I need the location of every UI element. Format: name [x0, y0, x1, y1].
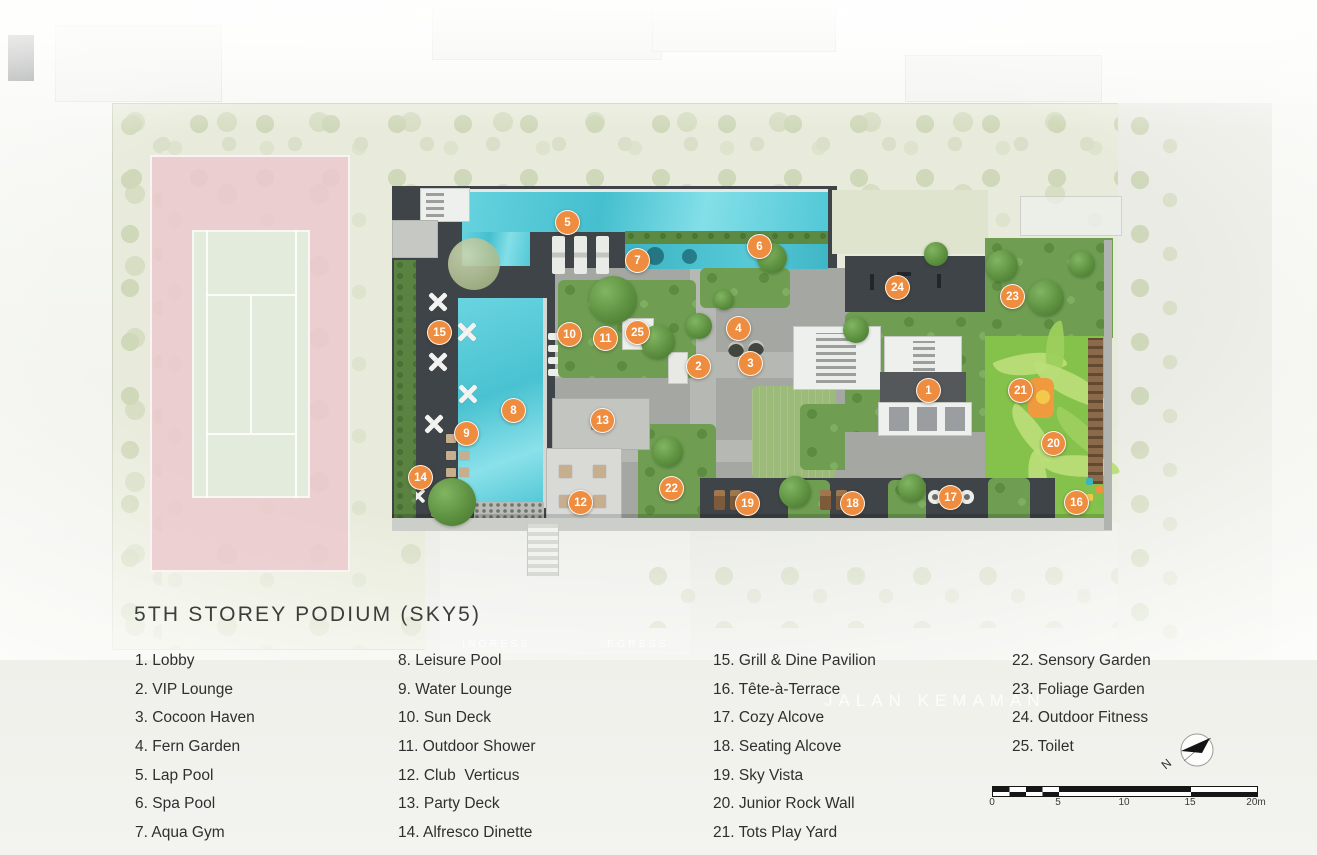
legend-item: 2. VIP Lounge	[135, 681, 435, 710]
markers-layer: 1234567891011121314151617181920212223242…	[0, 0, 1317, 660]
plan-marker-15: 15	[427, 320, 452, 345]
legend-item: 23. Foliage Garden	[1012, 681, 1312, 710]
scalebar-label: 10	[1118, 797, 1129, 808]
plan-marker-20: 20	[1041, 431, 1066, 456]
plan-marker-21: 21	[1008, 378, 1033, 403]
scalebar-label: 5	[1055, 797, 1061, 808]
plan-marker-3: 3	[738, 351, 763, 376]
legend-item: 12. Club Verticus	[398, 767, 698, 796]
plan-marker-10: 10	[557, 322, 582, 347]
legend-item: 5. Lap Pool	[135, 767, 435, 796]
legend-item: 3. Cocoon Haven	[135, 709, 435, 738]
plan-marker-22: 22	[659, 476, 684, 501]
legend-item: 4. Fern Garden	[135, 738, 435, 767]
legend-item: 19. Sky Vista	[713, 767, 1013, 796]
legend-item: 20. Junior Rock Wall	[713, 795, 1013, 824]
plan-marker-18: 18	[840, 491, 865, 516]
legend-column: 1. Lobby2. VIP Lounge3. Cocoon Haven4. F…	[135, 652, 435, 853]
scalebar-label: 20m	[1246, 797, 1265, 808]
scalebar-labels: 05101520m	[992, 797, 1256, 809]
north-arrow-icon	[1178, 731, 1216, 774]
legend-item: 22. Sensory Garden	[1012, 652, 1312, 681]
legend-item: 9. Water Lounge	[398, 681, 698, 710]
legend-item: 1. Lobby	[135, 652, 435, 681]
legend-column: 22. Sensory Garden23. Foliage Garden24. …	[1012, 652, 1312, 767]
legend-item: 7. Aqua Gym	[135, 824, 435, 853]
plan-marker-2: 2	[686, 354, 711, 379]
plan-marker-23: 23	[1000, 284, 1025, 309]
scalebar-label: 15	[1184, 797, 1195, 808]
plan-marker-13: 13	[590, 408, 615, 433]
legend-item: 24. Outdoor Fitness	[1012, 709, 1312, 738]
legend-item: 10. Sun Deck	[398, 709, 698, 738]
scale-bar	[992, 786, 1258, 797]
scalebar-label: 0	[989, 797, 995, 808]
plan-marker-9: 9	[454, 421, 479, 446]
plan-marker-12: 12	[568, 490, 593, 515]
plan-marker-16: 16	[1064, 490, 1089, 515]
legend-item: 6. Spa Pool	[135, 795, 435, 824]
plan-marker-6: 6	[747, 234, 772, 259]
legend-column: 8. Leisure Pool9. Water Lounge10. Sun De…	[398, 652, 698, 853]
plan-marker-25: 25	[625, 320, 650, 345]
plan-marker-1: 1	[916, 378, 941, 403]
legend-column: 15. Grill & Dine Pavilion16. Tête-à-Terr…	[713, 652, 1013, 853]
plan-marker-11: 11	[593, 326, 618, 351]
plan-marker-8: 8	[501, 398, 526, 423]
plan-marker-7: 7	[625, 248, 650, 273]
site-plan-page: 1234567891011121314151617181920212223242…	[0, 0, 1317, 855]
legend-item: 16. Tête-à-Terrace	[713, 681, 1013, 710]
plan-marker-24: 24	[885, 275, 910, 300]
legend: 1. Lobby2. VIP Lounge3. Cocoon Haven4. F…	[0, 645, 1317, 855]
legend-item: 13. Party Deck	[398, 795, 698, 824]
legend-item: 17. Cozy Alcove	[713, 709, 1013, 738]
page-title: 5TH STOREY PODIUM (SKY5)	[134, 603, 481, 627]
legend-item: 8. Leisure Pool	[398, 652, 698, 681]
legend-item: 14. Alfresco Dinette	[398, 824, 698, 853]
plan-marker-4: 4	[726, 316, 751, 341]
legend-item: 18. Seating Alcove	[713, 738, 1013, 767]
plan-marker-14: 14	[408, 465, 433, 490]
plan-marker-19: 19	[735, 491, 760, 516]
legend-item: 11. Outdoor Shower	[398, 738, 698, 767]
plan-marker-17: 17	[938, 485, 963, 510]
legend-item: 15. Grill & Dine Pavilion	[713, 652, 1013, 681]
legend-item: 21. Tots Play Yard	[713, 824, 1013, 853]
plan-marker-5: 5	[555, 210, 580, 235]
